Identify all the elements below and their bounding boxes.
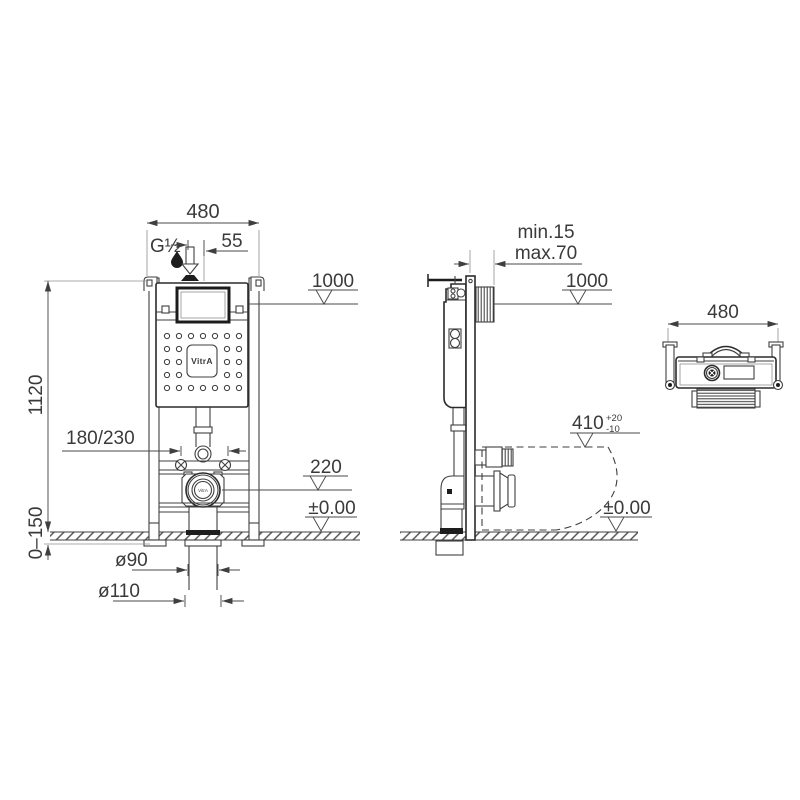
dim-drain-inner-label: ø90 [115,550,148,571]
access-window [177,288,229,322]
side-view: min.15 max.70 1000 410 +20 -10 [400,222,652,555]
level-floor-label: ±0.00 [308,498,355,519]
dim-pan-depth-label: 410 [572,413,604,434]
access-panel-top [724,366,754,379]
side-cistern [428,274,466,408]
level-triangle-icon [313,517,329,531]
level-triangle-icon [310,476,326,490]
below-floor-connector [436,541,463,555]
foot-left [144,540,166,546]
technical-drawing-page: VitrA [0,0,800,800]
level-marker-zero-side: ±0.00 [600,498,652,531]
dim-drain-outer-label: ø110 [98,581,140,602]
dim-wall-max-label: max.70 [515,243,577,264]
side-pipework [436,408,466,555]
level-triangle-icon [316,290,332,304]
flow-arrow-icon [186,247,194,264]
level-triangle-icon [570,290,586,304]
wall-bracket-right [251,277,264,291]
dim-width-top-label: 480 [707,302,739,323]
front-view: VitrA [26,201,360,607]
dim-outlet-range-label: 180/230 [66,428,135,449]
level-top-label-side: 1000 [566,271,608,292]
level-marker-410: 410 +20 -10 [570,413,640,447]
fixing-bolt-right [220,460,231,471]
front-cistern: VitrA [156,283,248,407]
tolerance-minus-label: -10 [606,424,620,435]
flush-pipe-section [195,446,211,462]
fixing-bolt-left [176,460,187,471]
tolerance-plus-label: +20 [606,413,622,424]
level-marker-1000-front: 1000 [249,271,358,304]
dim-height-label: 1120 [26,375,47,416]
drawing-canvas: VitrA [0,0,800,800]
foot-right [242,540,264,546]
side-frame-rail [466,276,475,540]
front-pipework: VitrA [159,407,249,590]
level-triangle-icon [577,433,593,447]
dim-wall-min-label: min.15 [517,222,574,243]
corrugated-block [692,389,760,408]
level-outlet-label: 220 [310,457,342,478]
dim-offset-label: 55 [221,231,242,252]
supply-label: G½ [150,236,181,257]
wall-bracket-left [144,277,157,291]
top-cistern [666,357,783,390]
floor-hatch-side [400,532,638,540]
level-triangle-icon [608,517,624,531]
floor-seal [186,530,220,535]
dim-width-label: 480 [186,201,219,223]
level-marker-1000-side: 1000 [494,271,612,304]
outlet-brand-label: VitrA [198,488,208,493]
level-top-label: 1000 [312,271,354,292]
pan-connectors [475,447,515,511]
level-floor-label-side: ±0.00 [603,498,650,519]
top-view: 480 [663,302,783,408]
wall-thickness-block [476,287,494,322]
outlet-socket: VitrA [182,472,224,507]
dim-floor-range-label: 0–150 [26,507,47,560]
brand-logo: VitrA [191,356,213,366]
level-marker-zero-front: ±0.00 [305,498,357,531]
